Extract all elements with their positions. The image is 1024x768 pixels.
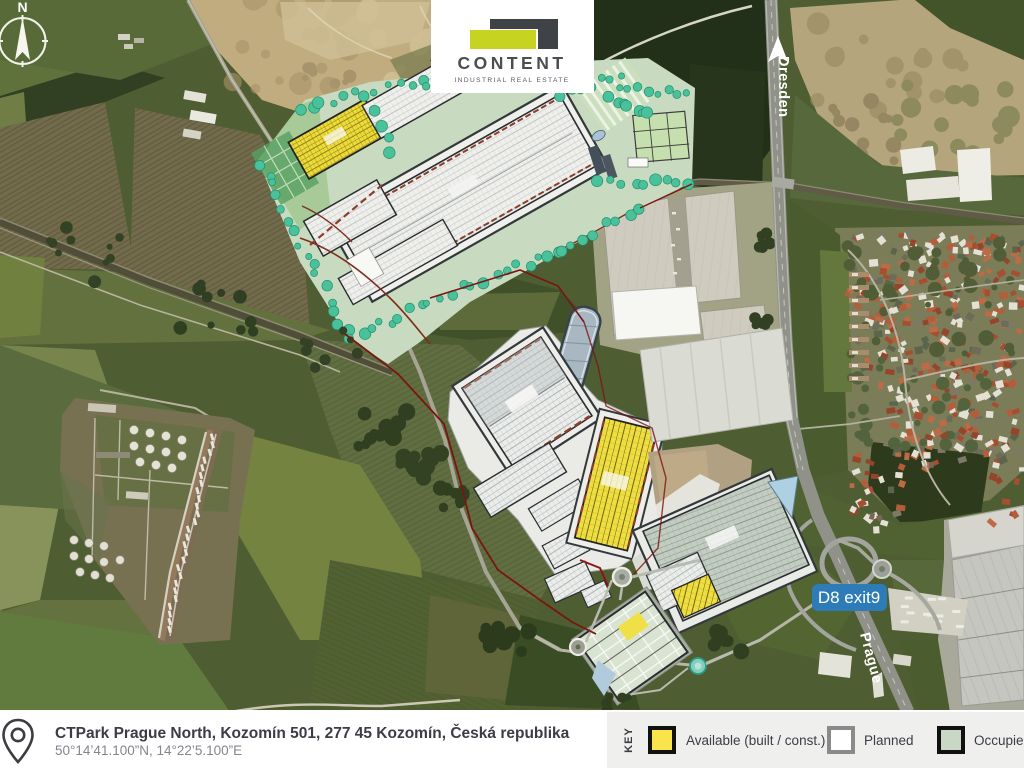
svg-text:Dresden: Dresden [775,56,791,118]
svg-text:50°14’41.100”N, 14°22’5.100”E: 50°14’41.100”N, 14°22’5.100”E [55,743,242,758]
svg-text:N: N [17,0,27,15]
svg-text:CTPark Prague North, Kozomín 5: CTPark Prague North, Kozomín 501, 277 45… [55,724,570,742]
svg-text:KEY: KEY [623,727,635,753]
svg-text:Occupied (: Occupied ( [974,733,1024,748]
svg-text:D8 exit9: D8 exit9 [818,588,880,607]
svg-text:CONTENT: CONTENT [457,53,566,73]
svg-text:Planned: Planned [864,733,914,748]
svg-text:Available (built / const.): Available (built / const.) [686,733,825,748]
svg-text:INDUSTRIAL REAL ESTATE: INDUSTRIAL REAL ESTATE [454,77,569,84]
